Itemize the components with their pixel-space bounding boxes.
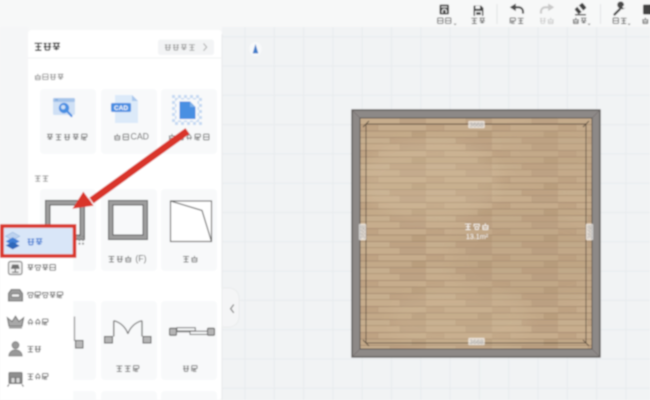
svg-text:13.1m²: 13.1m² (466, 232, 489, 241)
svg-text:3668: 3668 (469, 339, 484, 346)
svg-text:3668: 3668 (469, 122, 484, 129)
svg-text:3668: 3668 (587, 224, 594, 239)
svg-text:CAD: CAD (114, 105, 128, 112)
svg-text:3668: 3668 (360, 224, 367, 239)
svg-text:CAD: CAD (131, 132, 149, 142)
svg-text:(F): (F) (135, 254, 146, 264)
